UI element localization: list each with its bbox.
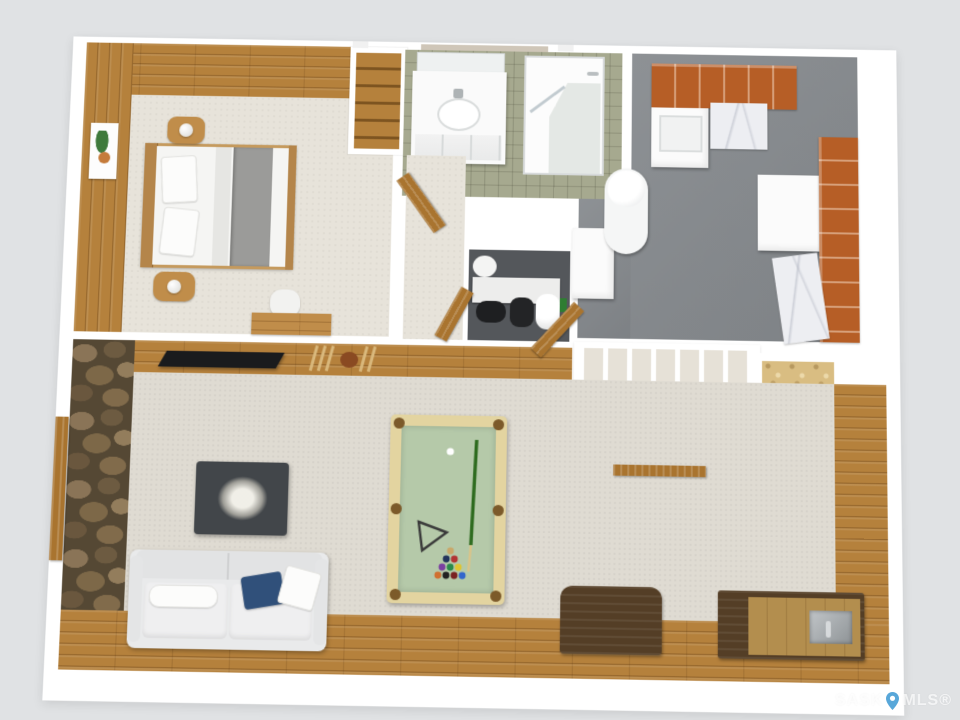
lamp [179,123,193,137]
chest-freezer [758,175,826,252]
bar-top [748,597,860,657]
sofa-armrest [127,555,144,641]
saskmls-watermark: SASK MLS® [835,692,952,710]
desk [251,313,331,336]
sofa [126,549,329,651]
triangle-rack [418,522,447,551]
art-plant-pot [98,152,110,164]
coffee-table [194,461,289,536]
bed-mattress [152,146,289,267]
bar-faucet [826,621,831,638]
utility-tank-dark [476,301,506,323]
water-heater-top [607,170,645,207]
lamp [167,280,181,294]
table-centerpiece-plant [217,476,269,521]
wet-bar [718,590,865,661]
bed-pillow [159,207,200,257]
sofa-navy-pillow [240,571,285,610]
media-console [560,586,662,656]
map-pin-icon [886,692,899,710]
watermark-text-right: MLS® [902,692,952,710]
cue-stick [325,346,335,372]
utility-fixture [473,255,497,277]
racked-balls [434,547,466,579]
utility-tank-dark [510,297,534,327]
floor-plan [42,36,904,715]
plant-wall-art [89,123,119,179]
screenshot-root: { "watermark": { "left": "SASK", "right"… [0,0,960,720]
wall-mounted-tv [158,351,285,369]
wall-notch [353,41,369,48]
cue-stick-tip [468,545,471,572]
shower-head [587,72,599,76]
nightstand [153,271,196,301]
bar-sink [809,610,852,644]
pool-table [386,414,507,605]
bed-folded-sheet [212,147,232,266]
rack-ball-holder [340,352,358,368]
laundry-sink-basin [659,115,702,152]
sofa-white-lumbar-pillow [148,584,218,608]
bedroom [74,42,396,336]
marble-counter [710,103,767,150]
corner-shower [523,56,605,176]
water-heater [604,168,648,254]
vanity-sink [437,98,481,131]
bed-gray-runner [230,147,274,266]
cue-ball [447,448,454,455]
closet-shelving [354,53,402,150]
closet [348,47,408,155]
wall-notch [558,45,574,52]
watermark-text-left: SASK [835,692,883,710]
bed [140,143,297,270]
pool-table-accessories [386,414,507,605]
shower-pan [549,83,601,174]
nightstand [167,116,205,144]
spacer [573,342,760,475]
bedroom-wood-wall-left [74,42,134,332]
cue-stick [367,346,377,372]
bed-pillow [161,155,198,203]
cue-stick-shaft [471,440,477,545]
stored-door-slab [613,464,706,477]
pool-cue-rack [310,345,377,374]
vanity-faucet [453,89,463,99]
laundry-sink-unit [651,107,708,168]
bathroom-vanity [411,71,507,165]
